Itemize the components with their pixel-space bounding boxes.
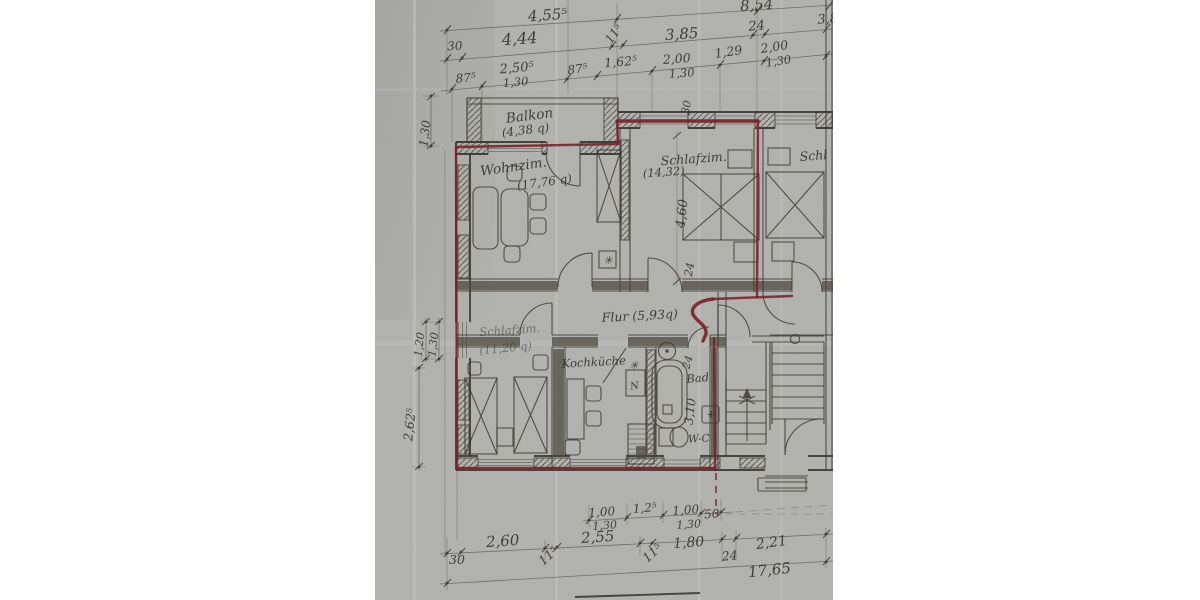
label-schlafzimmer-top-area: (14,32) — [642, 164, 685, 181]
dim-top1-a: 4,55⁵ — [526, 5, 568, 26]
dim-top2-e: 24 — [747, 18, 766, 34]
dim-bot1-c2: 1,30 — [676, 517, 701, 532]
dim-bot3-a: 30 — [449, 552, 465, 567]
paper-photo: 4,55⁵ 8,54 30 4,44 11⁵ 3,85 24 3,8 87⁵ 2… — [375, 0, 839, 600]
dim-top3-d: 1,62⁵ — [604, 53, 638, 71]
dim-top2-b: 4,44 — [500, 28, 538, 50]
dim-top2-f: 3,8 — [817, 11, 839, 28]
dim-bot2-a: 2,60 — [484, 531, 520, 551]
dim-wall-30: 30 — [679, 99, 694, 115]
floor-plan-photo: 4,55⁵ 8,54 30 4,44 11⁵ 3,85 24 3,8 87⁵ 2… — [0, 0, 1200, 600]
dim-bot2-f: 24 — [720, 547, 738, 563]
dim-top3-e2: 1,30 — [668, 65, 695, 81]
label-wc: W-C — [688, 432, 710, 445]
stove-symbol: ✳ — [603, 254, 613, 267]
dim-bot2-c: 2,55 — [579, 527, 615, 547]
dim-top2-a: 30 — [447, 39, 463, 54]
dim-bot2-e: 1,80 — [673, 534, 705, 552]
dim-bot1-c: 1,00 — [672, 502, 700, 518]
dim-top3-a: 87⁵ — [455, 70, 476, 86]
label-neighbor: Schl — [799, 147, 828, 164]
label-bad: Bad — [685, 370, 710, 386]
dim-top1-b: 8,54 — [739, 0, 774, 15]
dim-top3-c: 87⁵ — [567, 61, 589, 77]
dim-top2-d: 3,85 — [664, 24, 699, 44]
dim-top3-e: 2,00 — [661, 50, 691, 67]
dim-schlafzimmer-depth: 4,60 — [673, 198, 691, 229]
dim-top3-b2: 1,30 — [502, 74, 529, 90]
dim-bot1-d: 50 — [704, 506, 721, 521]
balcony-pier-left — [467, 98, 481, 142]
dim-bot1-b: 1,2⁵ — [632, 500, 657, 516]
page: 4,55⁵ 8,54 30 4,44 11⁵ 3,85 24 3,8 87⁵ 2… — [0, 0, 1200, 600]
dim-schlafzimmer-door: 24 — [682, 261, 697, 278]
